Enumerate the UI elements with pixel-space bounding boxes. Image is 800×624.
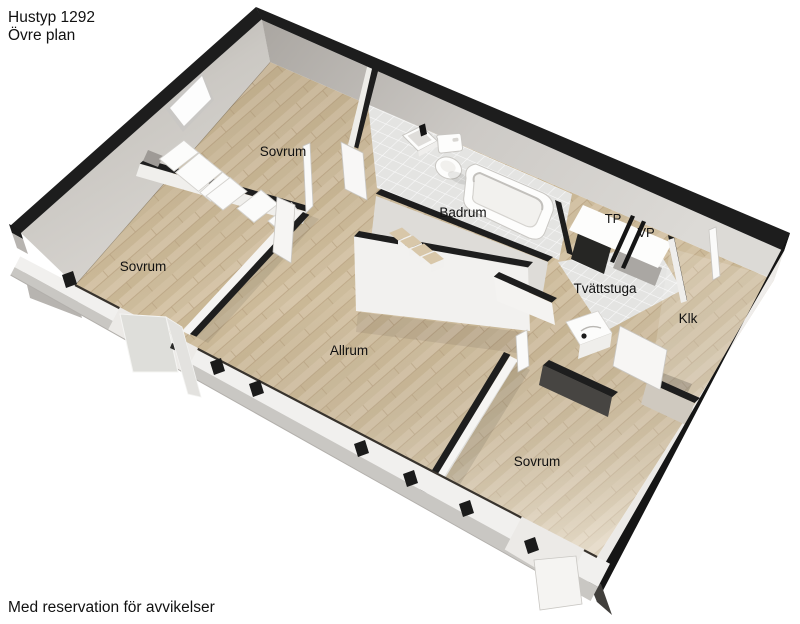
svg-text:Badrum: Badrum — [439, 205, 486, 220]
svg-text:TP: TP — [605, 211, 622, 226]
svg-text:Med reservation för avvikelser: Med reservation för avvikelser — [8, 599, 215, 616]
svg-text:Sovrum: Sovrum — [514, 454, 561, 469]
svg-text:Sovrum: Sovrum — [120, 259, 167, 274]
svg-text:VP: VP — [637, 225, 654, 240]
svg-text:Tvättstuga: Tvättstuga — [573, 281, 637, 296]
svg-text:Hustyp 1292: Hustyp 1292 — [8, 9, 95, 26]
svg-text:Sovrum: Sovrum — [260, 144, 307, 159]
svg-text:Klk: Klk — [679, 311, 698, 326]
svg-text:Allrum: Allrum — [330, 343, 368, 358]
svg-text:Övre plan: Övre plan — [8, 26, 75, 44]
